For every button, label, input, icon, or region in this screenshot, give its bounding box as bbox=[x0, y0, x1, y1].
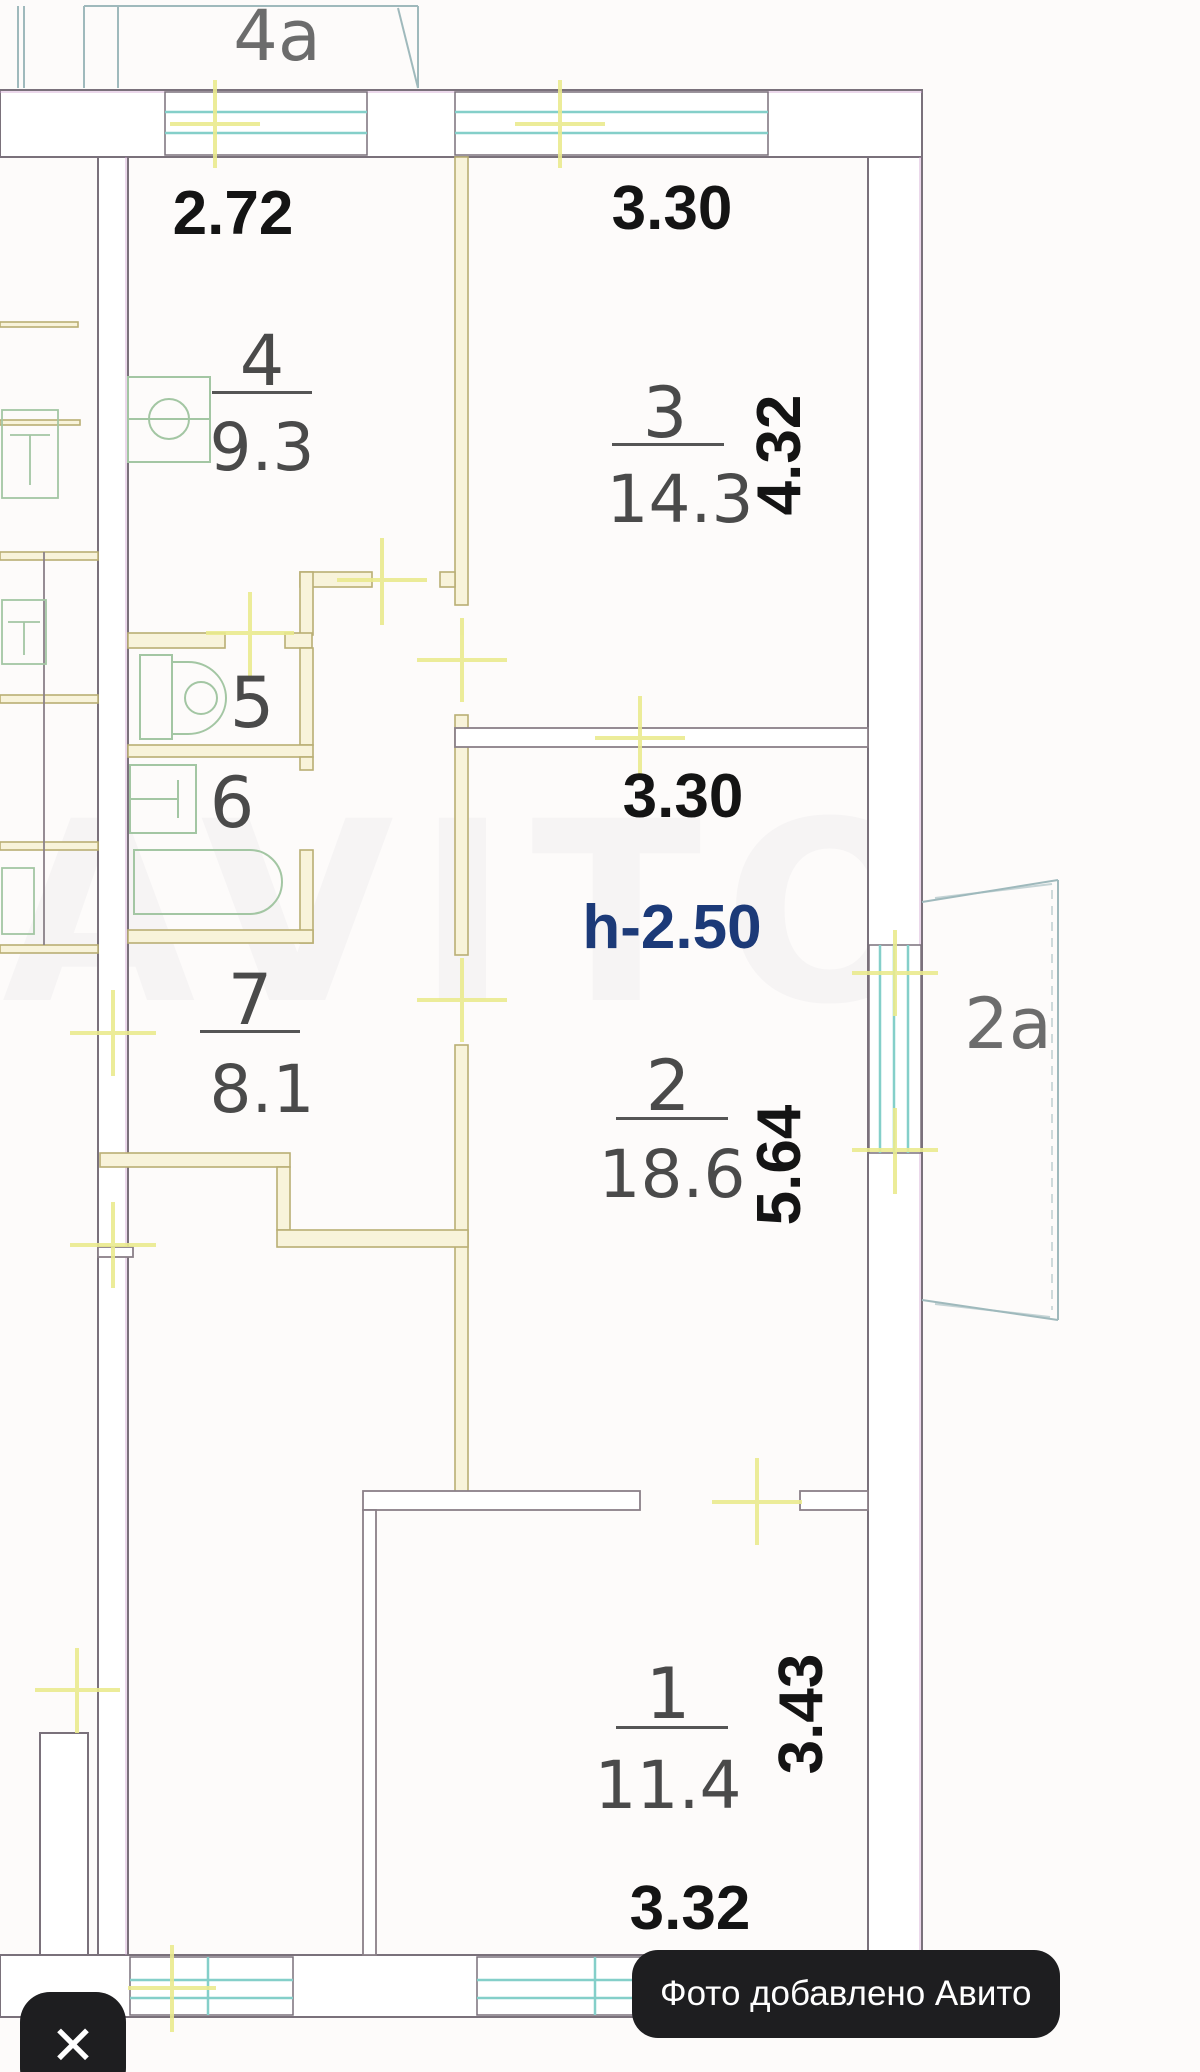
room3-number: 3 bbox=[643, 372, 688, 454]
balcony-right-label: 2а bbox=[964, 983, 1051, 1065]
avito-photo-badge: Фото добавлено Авито bbox=[632, 1950, 1060, 2038]
dim-room1-depth: 3.43 bbox=[767, 1654, 836, 1775]
balcony-top-label: 4а bbox=[233, 0, 320, 77]
dim-room1-width: 3.32 bbox=[630, 1874, 751, 1943]
room2-area: 18.6 bbox=[599, 1136, 746, 1213]
ceiling-height-label: h-2.50 bbox=[582, 893, 761, 962]
hall-number: 7 bbox=[228, 959, 273, 1041]
avito-photo-badge-text: Фото добавлено Авито bbox=[660, 1974, 1032, 2014]
dim-kitchen-width: 2.72 bbox=[173, 179, 294, 248]
photo-viewer: AVITO bbox=[0, 0, 1200, 2072]
dim-room2-depth: 5.64 bbox=[745, 1104, 814, 1225]
room1-area: 11.4 bbox=[595, 1747, 742, 1824]
room2-number: 2 bbox=[646, 1045, 691, 1127]
balcony-top bbox=[18, 6, 418, 88]
dim-room2-width: 3.30 bbox=[623, 762, 744, 831]
bathroom-number: 6 bbox=[210, 762, 255, 844]
close-icon: ✕ bbox=[50, 2014, 95, 2072]
kitchen-area: 9.3 bbox=[210, 409, 315, 486]
kitchen-number: 4 bbox=[240, 320, 285, 402]
floorplan-image: AVITO bbox=[0, 0, 1200, 2072]
close-button[interactable]: ✕ bbox=[20, 1992, 126, 2072]
dim-room3-depth: 4.32 bbox=[745, 395, 814, 516]
dim-room3-width: 3.30 bbox=[612, 174, 733, 243]
hall-area: 8.1 bbox=[210, 1051, 315, 1128]
room3-area: 14.3 bbox=[607, 461, 754, 538]
wc-number: 5 bbox=[230, 662, 275, 744]
room1-number: 1 bbox=[646, 1653, 691, 1735]
